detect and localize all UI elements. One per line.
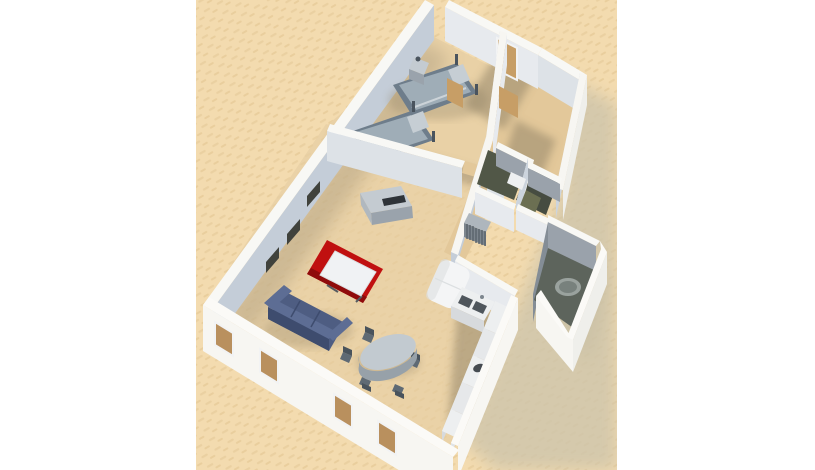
sink-faucet [480, 295, 484, 299]
page-background [0, 0, 815, 470]
bed1-post-a [455, 54, 458, 65]
bathtub-inner [559, 281, 577, 293]
bed2-post-a [412, 101, 415, 112]
floor-plan-render [196, 0, 617, 470]
bed1-post-b [475, 84, 478, 95]
floor-plan-svg [196, 0, 617, 470]
bed2-post-b [432, 131, 435, 142]
nightstand-lamp [416, 57, 421, 62]
